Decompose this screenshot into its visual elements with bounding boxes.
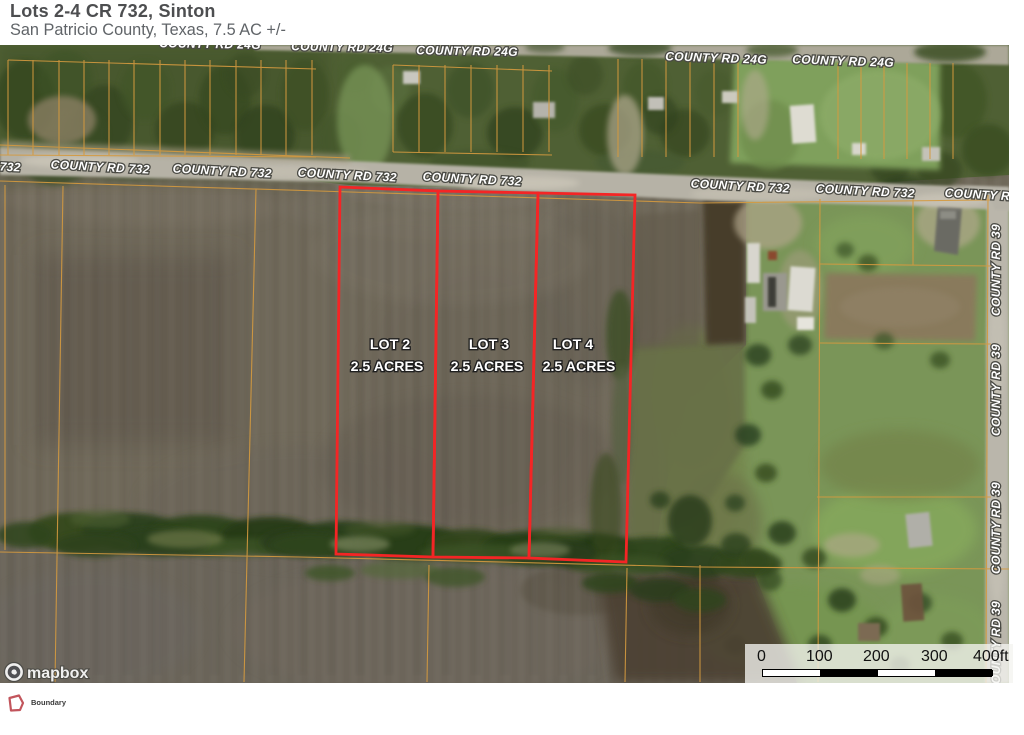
svg-text:COUNTY RD 24G: COUNTY RD 24G xyxy=(416,45,518,59)
svg-text:2.5 ACRES: 2.5 ACRES xyxy=(451,359,524,375)
svg-text:LOT 2: LOT 2 xyxy=(370,337,410,353)
svg-text:732: 732 xyxy=(0,159,21,174)
svg-text:COUNTY RD 39: COUNTY RD 39 xyxy=(989,224,1003,316)
svg-text:COUNTY RD 39: COUNTY RD 39 xyxy=(989,482,1003,574)
svg-text:2.5 ACRES: 2.5 ACRES xyxy=(543,359,616,375)
svg-text:LOT 3: LOT 3 xyxy=(469,337,509,353)
svg-text:mapbox: mapbox xyxy=(27,665,88,682)
svg-text:COUNTY RD 39: COUNTY RD 39 xyxy=(989,344,1003,436)
svg-text:2.5 ACRES: 2.5 ACRES xyxy=(351,359,424,375)
svg-text:LOT 4: LOT 4 xyxy=(553,337,593,353)
